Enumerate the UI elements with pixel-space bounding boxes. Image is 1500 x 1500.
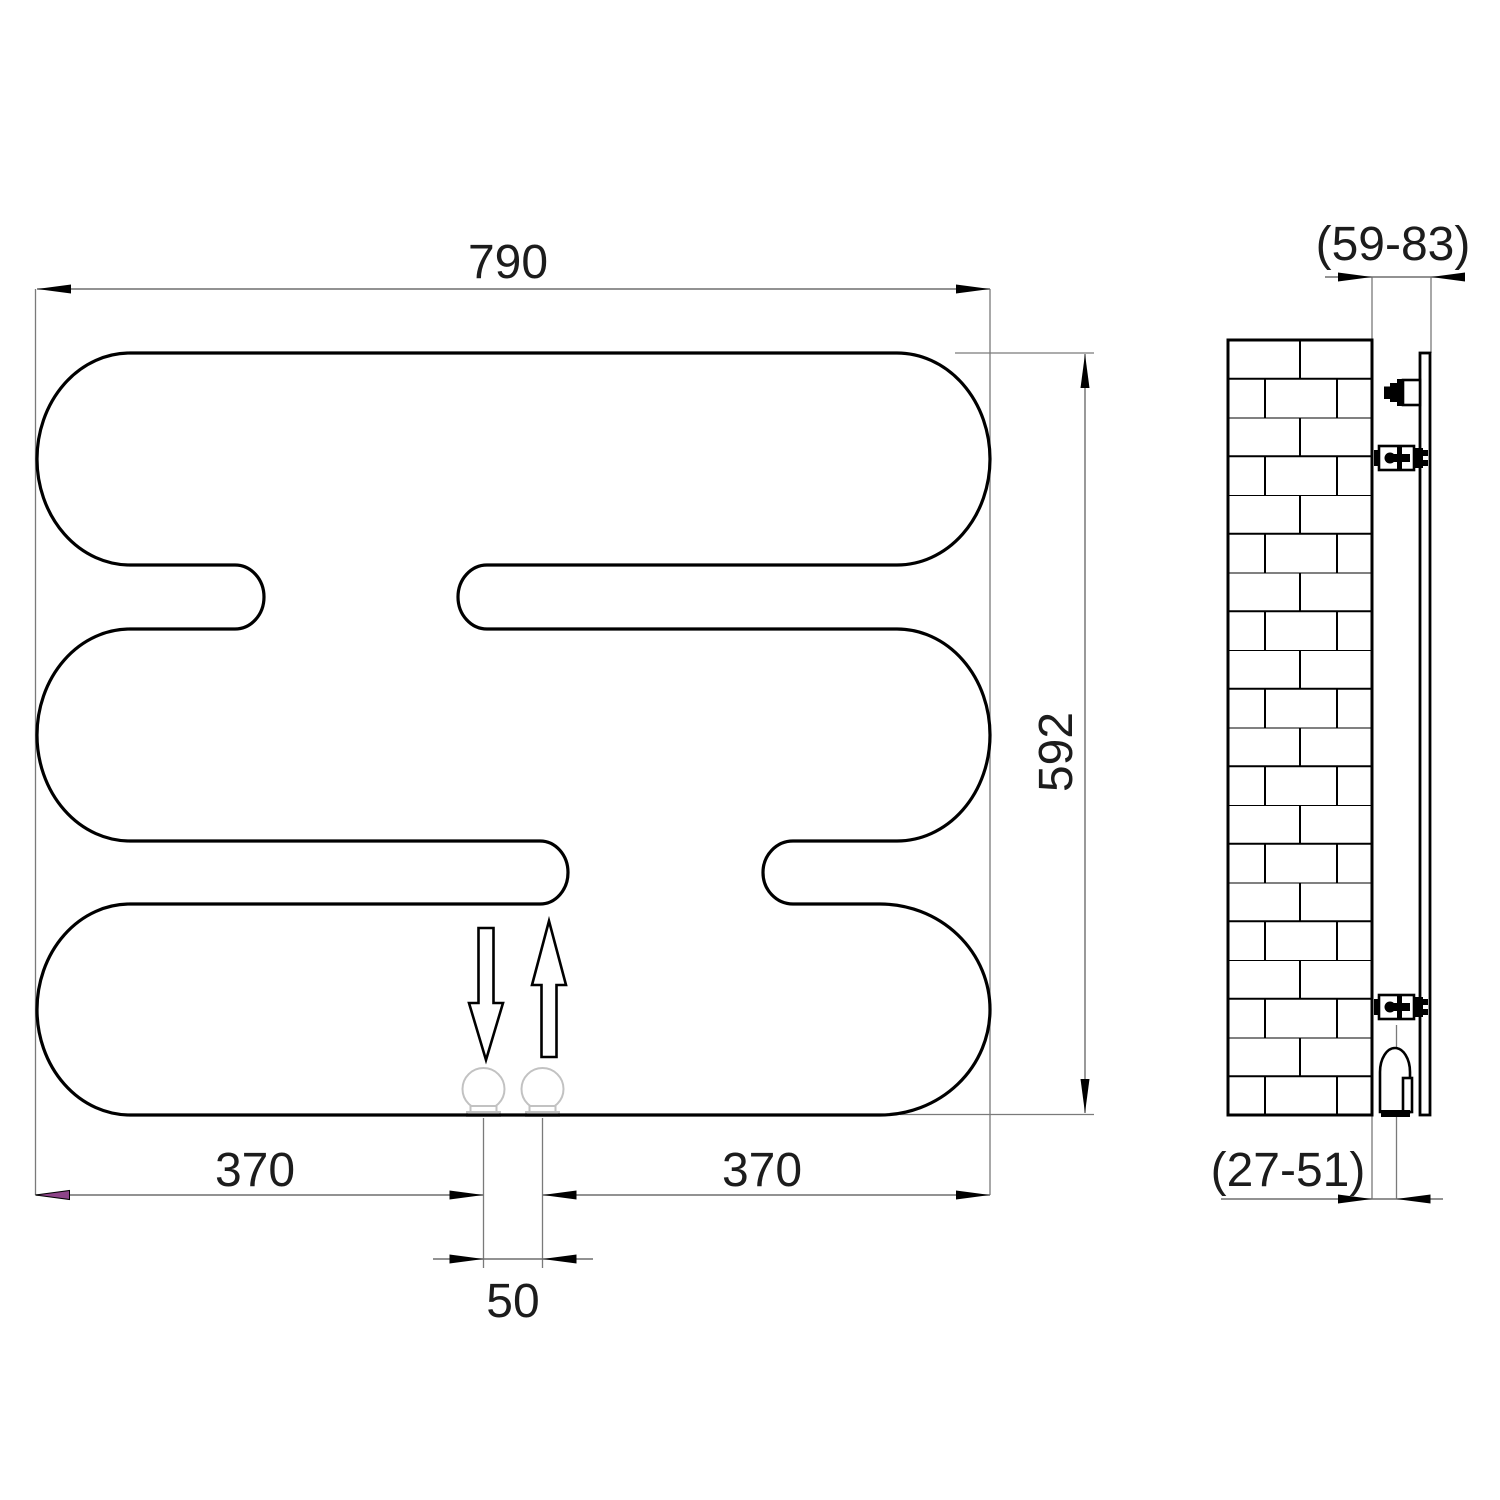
arrowhead-left [450, 1255, 484, 1264]
inlet-pipe [463, 1068, 505, 1110]
height-dimension-label: 592 [1030, 712, 1083, 792]
depth-range-label: (59-83) [1316, 218, 1471, 271]
valve-elbow [1380, 1048, 1412, 1117]
radiator-dimension-drawing: 790 592 370 370 50 [0, 0, 1500, 1500]
arrowhead-right [956, 285, 990, 294]
arrowhead-right [450, 1191, 484, 1200]
technical-drawing-page: 790 592 370 370 50 [0, 0, 1500, 1500]
pipe-spacing-label: 50 [486, 1275, 539, 1328]
radiator-front-body-fill [37, 353, 990, 1115]
outlet-pipe [522, 1068, 564, 1110]
wall-bracket-upper [1374, 446, 1428, 470]
width-dimension-label: 790 [468, 236, 548, 289]
depth-dimension: (59-83) [1316, 218, 1471, 282]
arrowhead-right [1397, 1195, 1431, 1204]
air-vent-knob [1384, 379, 1420, 406]
arrowhead-right [543, 1255, 577, 1264]
height-dimension: 592 [1030, 354, 1090, 1113]
arrowhead-left [37, 285, 71, 294]
arrowhead-right [956, 1191, 990, 1200]
bottom-right-span-dimension: 370 [543, 1144, 991, 1200]
pipe-depth-dimension: (27-51) [1211, 1144, 1443, 1204]
arrowhead-left [543, 1191, 577, 1200]
wall-bracket-lower [1374, 995, 1428, 1019]
side-view: (59-83) (27-51) [1211, 218, 1471, 1204]
bottom-right-span-label: 370 [722, 1144, 802, 1197]
arrowhead-left-accent [36, 1191, 70, 1200]
arrowhead-left [1338, 273, 1372, 282]
bottom-left-span-dimension: 370 [36, 1144, 484, 1200]
arrowhead-top [1081, 354, 1090, 388]
width-dimension: 790 [37, 236, 990, 294]
arrowhead-bottom [1081, 1079, 1090, 1113]
arrowhead-right [1431, 273, 1465, 282]
pipe-depth-range-label: (27-51) [1211, 1144, 1366, 1197]
pipe-spacing-dimension: 50 [433, 1255, 593, 1329]
brick-wall [1228, 340, 1372, 1115]
bottom-left-span-label: 370 [215, 1144, 295, 1197]
